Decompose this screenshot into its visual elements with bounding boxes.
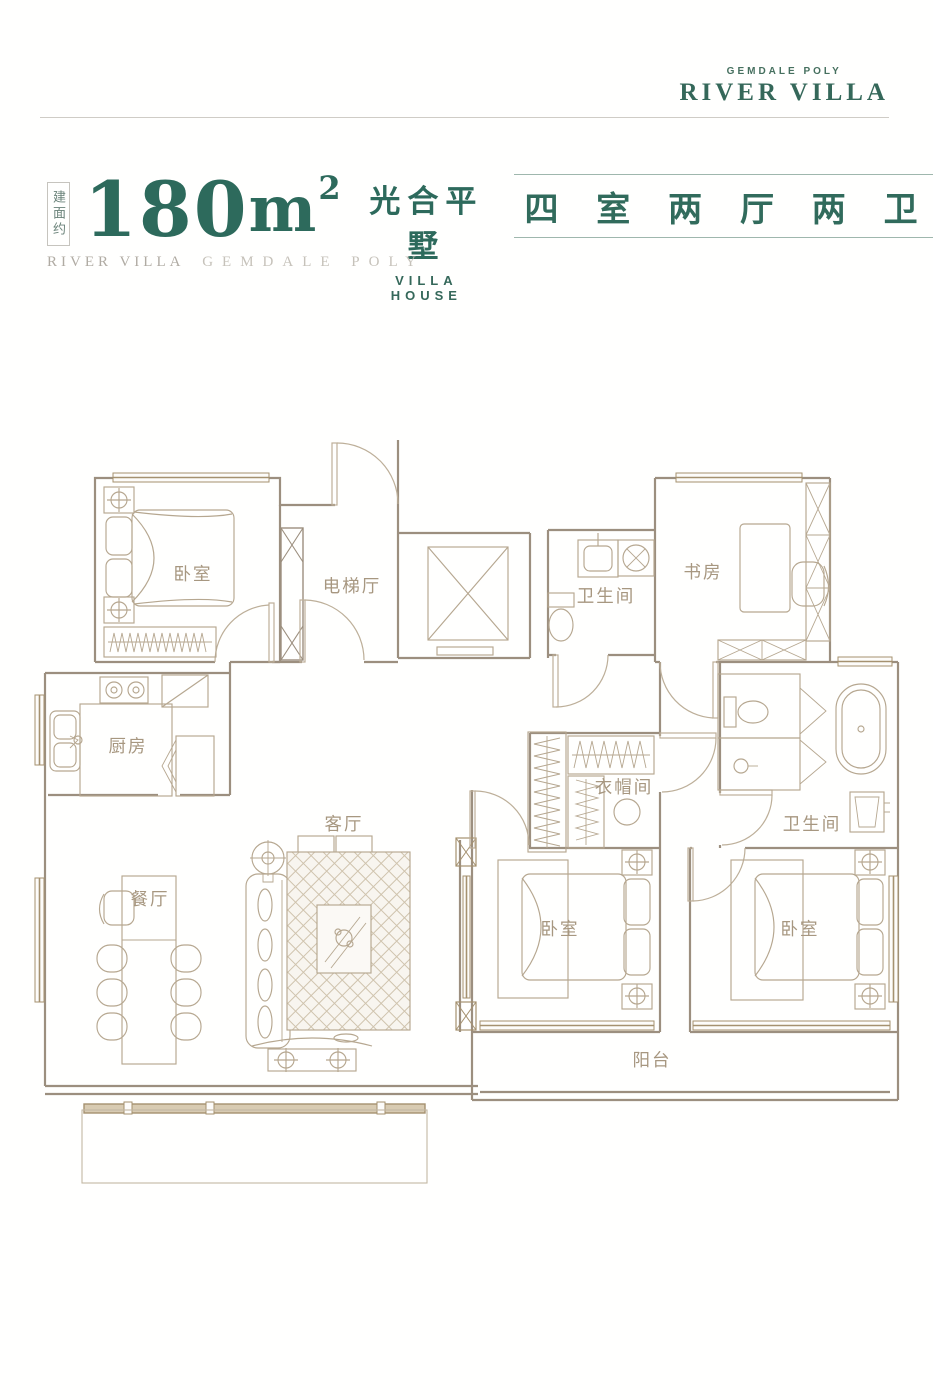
bedroom-top-left-furniture (104, 487, 234, 657)
doors-layer (215, 443, 772, 901)
sofa-icon (246, 874, 290, 1048)
room-label-bathroom-right: 卫生间 (783, 814, 842, 834)
toilet-icon (724, 697, 736, 727)
chair-icon (104, 891, 134, 925)
tv-icon (252, 1038, 372, 1046)
elevator-shaft (428, 547, 508, 655)
bathtub-icon (836, 684, 886, 774)
room-label-dining-room: 餐厅 (131, 889, 170, 909)
room-label-kitchen: 厨房 (109, 736, 148, 756)
living-furniture (246, 836, 410, 1072)
stool-icon (614, 799, 640, 825)
stove-icon (100, 677, 148, 703)
room-label-living-room: 客厅 (325, 814, 364, 834)
room-label-study: 书房 (684, 562, 723, 582)
toilet-icon (548, 593, 574, 607)
room-label-bedroom-right: 卧室 (781, 919, 820, 939)
desk-icon (740, 524, 790, 612)
bed-icon (132, 510, 234, 606)
windows-layer (35, 473, 898, 1114)
walls-layer (45, 440, 898, 1100)
room-label-cloakroom: 衣帽间 (595, 777, 654, 797)
coffee-table-icon (317, 905, 371, 973)
room-label-elevator-hall: 电梯厅 (323, 576, 382, 596)
floorplan-svg: 卧室 电梯厅 卫生间 书房 厨房 衣帽间 客厅 卫生间 餐厅 卧室 卧室 阳台 (0, 0, 933, 1400)
room-label-bathroom-top: 卫生间 (577, 586, 636, 606)
bathroom-right-fixtures (718, 674, 890, 832)
page: GEMDALE POLY RIVER VILLA 建面约 180 m 2 光合平… (0, 0, 933, 1400)
room-label-balcony: 阳台 (633, 1050, 672, 1070)
terrace-outline (82, 1110, 427, 1183)
study-furniture (718, 483, 830, 660)
room-label-bedroom-middle: 卧室 (541, 919, 580, 939)
room-label-bedroom-top-left: 卧室 (174, 564, 213, 584)
